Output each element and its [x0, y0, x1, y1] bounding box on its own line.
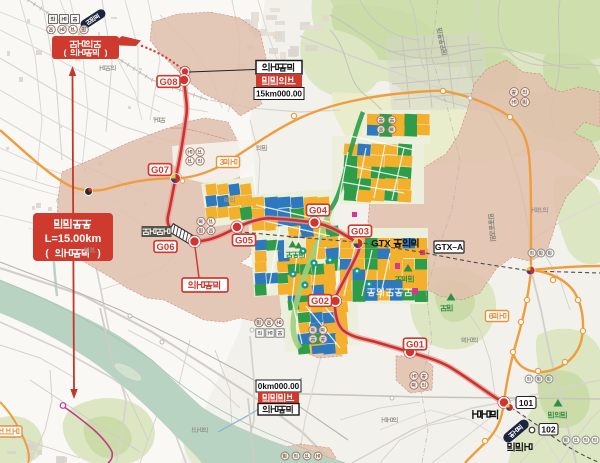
svg-text:G06: G06: [157, 242, 175, 253]
svg-text:): ): [105, 48, 108, 58]
svg-text:G08: G08: [160, 77, 178, 88]
svg-text:): ): [97, 249, 100, 260]
svg-text:G07: G07: [151, 165, 169, 176]
svg-text:G04: G04: [309, 205, 328, 216]
svg-text:G05: G05: [235, 235, 254, 246]
svg-text:0km000.00: 0km000.00: [258, 382, 300, 391]
svg-text:G03: G03: [351, 226, 369, 237]
svg-text:G02: G02: [311, 296, 329, 307]
svg-text:L=15.00km: L=15.00km: [45, 233, 102, 245]
svg-text:GTX: GTX: [371, 239, 391, 250]
svg-text:(: (: [64, 48, 67, 58]
svg-text:102: 102: [541, 425, 555, 435]
svg-text:101: 101: [519, 398, 533, 408]
svg-text:15km000.00: 15km000.00: [256, 90, 302, 99]
svg-text:GTX–A: GTX–A: [435, 242, 463, 252]
svg-text:G01: G01: [406, 339, 425, 350]
